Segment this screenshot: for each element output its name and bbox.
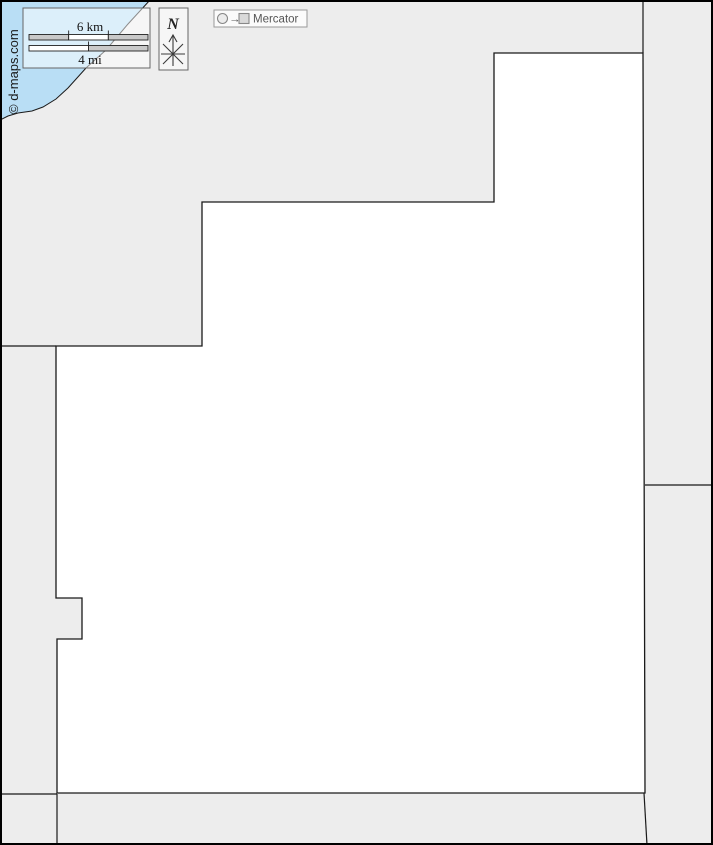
scale-mi-segment	[89, 46, 149, 52]
projection-panel: → Mercator	[214, 10, 307, 27]
north-label: N	[166, 16, 180, 33]
map-viewport: 6 km 4 mi N	[0, 0, 713, 845]
copyright-text: © d-maps.com	[6, 29, 21, 114]
map-canvas: 6 km 4 mi N	[0, 0, 713, 845]
scale-km-segment	[69, 35, 109, 41]
north-compass-panel: N	[159, 8, 188, 70]
scale-bar-panel: 6 km 4 mi	[23, 8, 150, 68]
projection-circle-icon	[218, 14, 228, 24]
scale-km-label: 6 km	[77, 19, 103, 34]
scale-km-segment	[29, 35, 69, 41]
scale-km-segment	[108, 35, 148, 41]
projection-label: Mercator	[253, 14, 299, 26]
scale-mi-segment	[29, 46, 89, 52]
scale-mi-label: 4 mi	[78, 52, 102, 67]
projection-square-icon	[239, 14, 249, 24]
